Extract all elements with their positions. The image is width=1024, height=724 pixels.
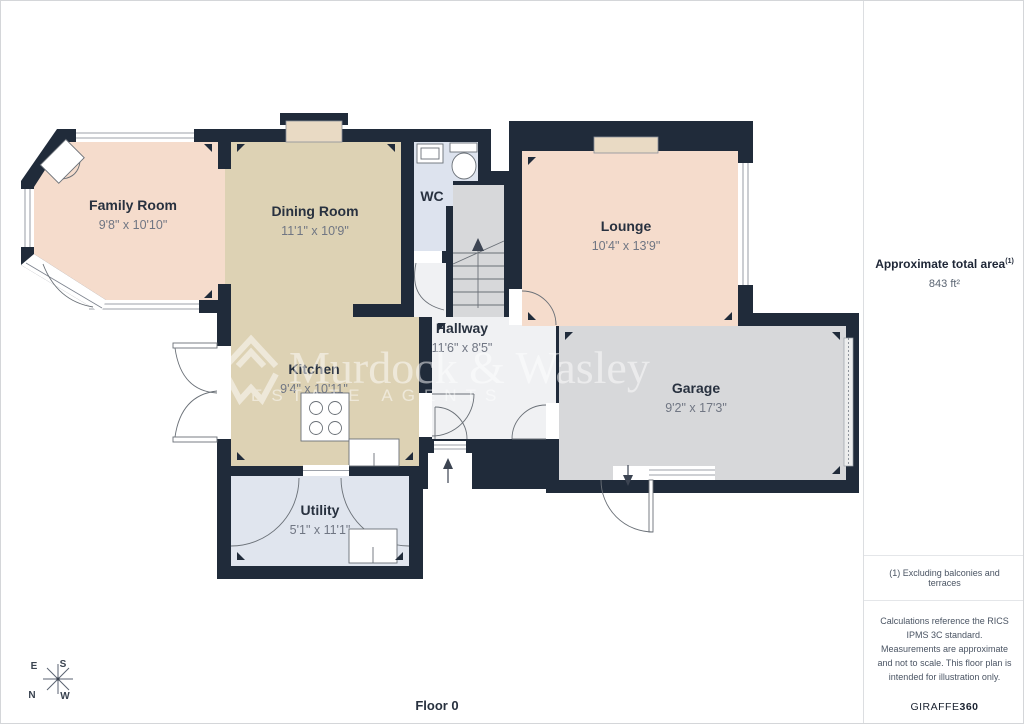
dining-room-dims: 11'1" x 10'9" [281, 224, 349, 238]
compass-icon: E S N W [28, 659, 73, 702]
floorplan-drawing: Family Room 9'8" x 10'10" Dining Room 11… [1, 1, 863, 724]
total-area-block: Approximate total area(1) 843 ft² [864, 257, 1024, 290]
dining-kitchen-wall-stub [353, 304, 419, 317]
compass-e: E [31, 661, 38, 672]
garage-label: Garage [672, 380, 720, 396]
family-bottom-window [89, 300, 199, 313]
total-area-value: 843 ft² [864, 278, 1024, 290]
lounge-window-sill [594, 137, 658, 153]
disclaimer-text: Calculations reference the RICS IPMS 3C … [876, 615, 1013, 685]
openplan-patch-dining [225, 169, 232, 284]
lounge-dims: 10'4" x 13'9" [592, 239, 661, 253]
brand-name: GIRAFFE [910, 701, 959, 713]
garage-roller-door [844, 338, 853, 466]
brand-suffix: 360 [959, 701, 978, 713]
floor-label: Floor 0 [415, 698, 458, 713]
sidebar-footnote: (1) Excluding balconies and terraces [864, 556, 1024, 601]
floorplan-page: Family Room 9'8" x 10'10" Dining Room 11… [0, 0, 1024, 724]
compass-s: S [60, 659, 67, 670]
wc-label: WC [420, 188, 443, 204]
family-top-window [76, 129, 194, 142]
brand-logo-text: GIRAFFE360 [876, 699, 1013, 715]
toilet-bowl [452, 153, 476, 179]
total-area-note-ref: (1) [1005, 258, 1014, 265]
total-area-label: Approximate total area(1) [864, 257, 1024, 271]
total-area-label-text: Approximate total area [875, 257, 1005, 271]
dining-room-label: Dining Room [271, 203, 358, 219]
sidebar-disclaimer-section: Calculations reference the RICS IPMS 3C … [864, 601, 1024, 724]
garage-dims: 9'2" x 17'3" [665, 401, 727, 415]
sidebar-total-area-section: Approximate total area(1) 843 ft² [864, 1, 1024, 556]
family-room-dims: 9'8" x 10'10" [99, 218, 168, 232]
stairs-left-wall [446, 206, 453, 317]
garage-bottom-door [601, 465, 715, 532]
lounge-right-window [738, 163, 753, 285]
openplan-patch-family [218, 169, 225, 284]
family-left-window [21, 189, 34, 247]
compass-w: W [60, 691, 70, 702]
kitchen-left-doors [173, 343, 231, 442]
sidebar: Approximate total area(1) 843 ft² (1) Ex… [863, 1, 1024, 724]
utility-dims: 5'1" x 11'1" [290, 523, 351, 537]
watermark-tagline: ESTATE AGENTS [251, 386, 505, 405]
hallway-label: Hallway [436, 320, 488, 336]
dining-window-sill [286, 121, 342, 142]
utility-label: Utility [301, 502, 340, 518]
lounge-label: Lounge [601, 218, 652, 234]
family-room-label: Family Room [89, 197, 177, 213]
compass-n: N [28, 690, 35, 701]
toilet-tank [450, 143, 477, 152]
